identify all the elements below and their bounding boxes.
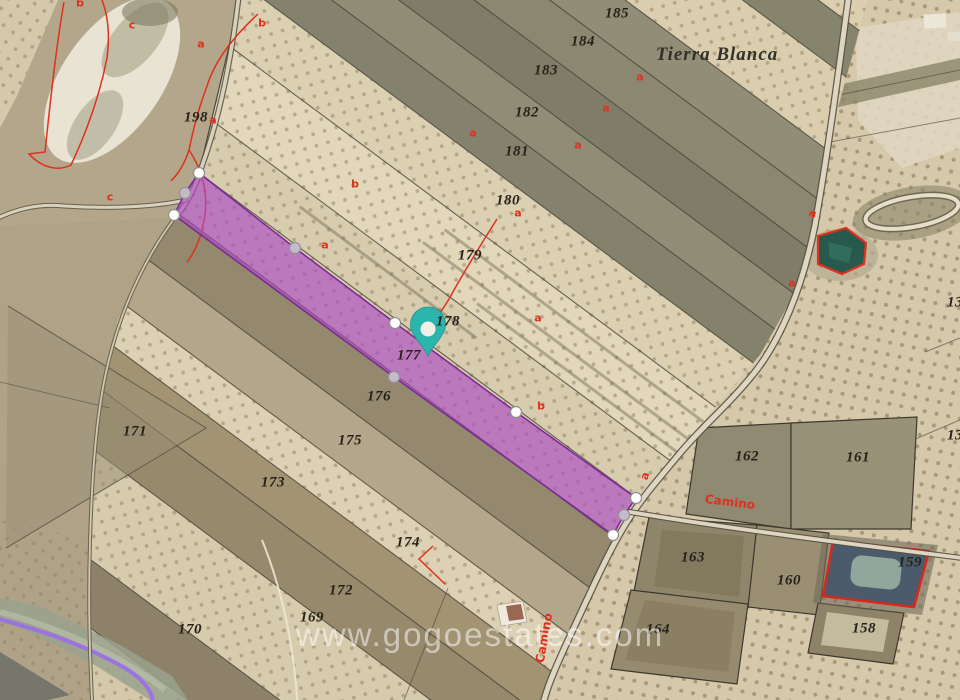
building bbox=[497, 601, 527, 626]
map-canvas[interactable] bbox=[0, 0, 960, 700]
map-viewport[interactable]: Tierra Blanca Camino Camino 185184183182… bbox=[0, 0, 960, 700]
